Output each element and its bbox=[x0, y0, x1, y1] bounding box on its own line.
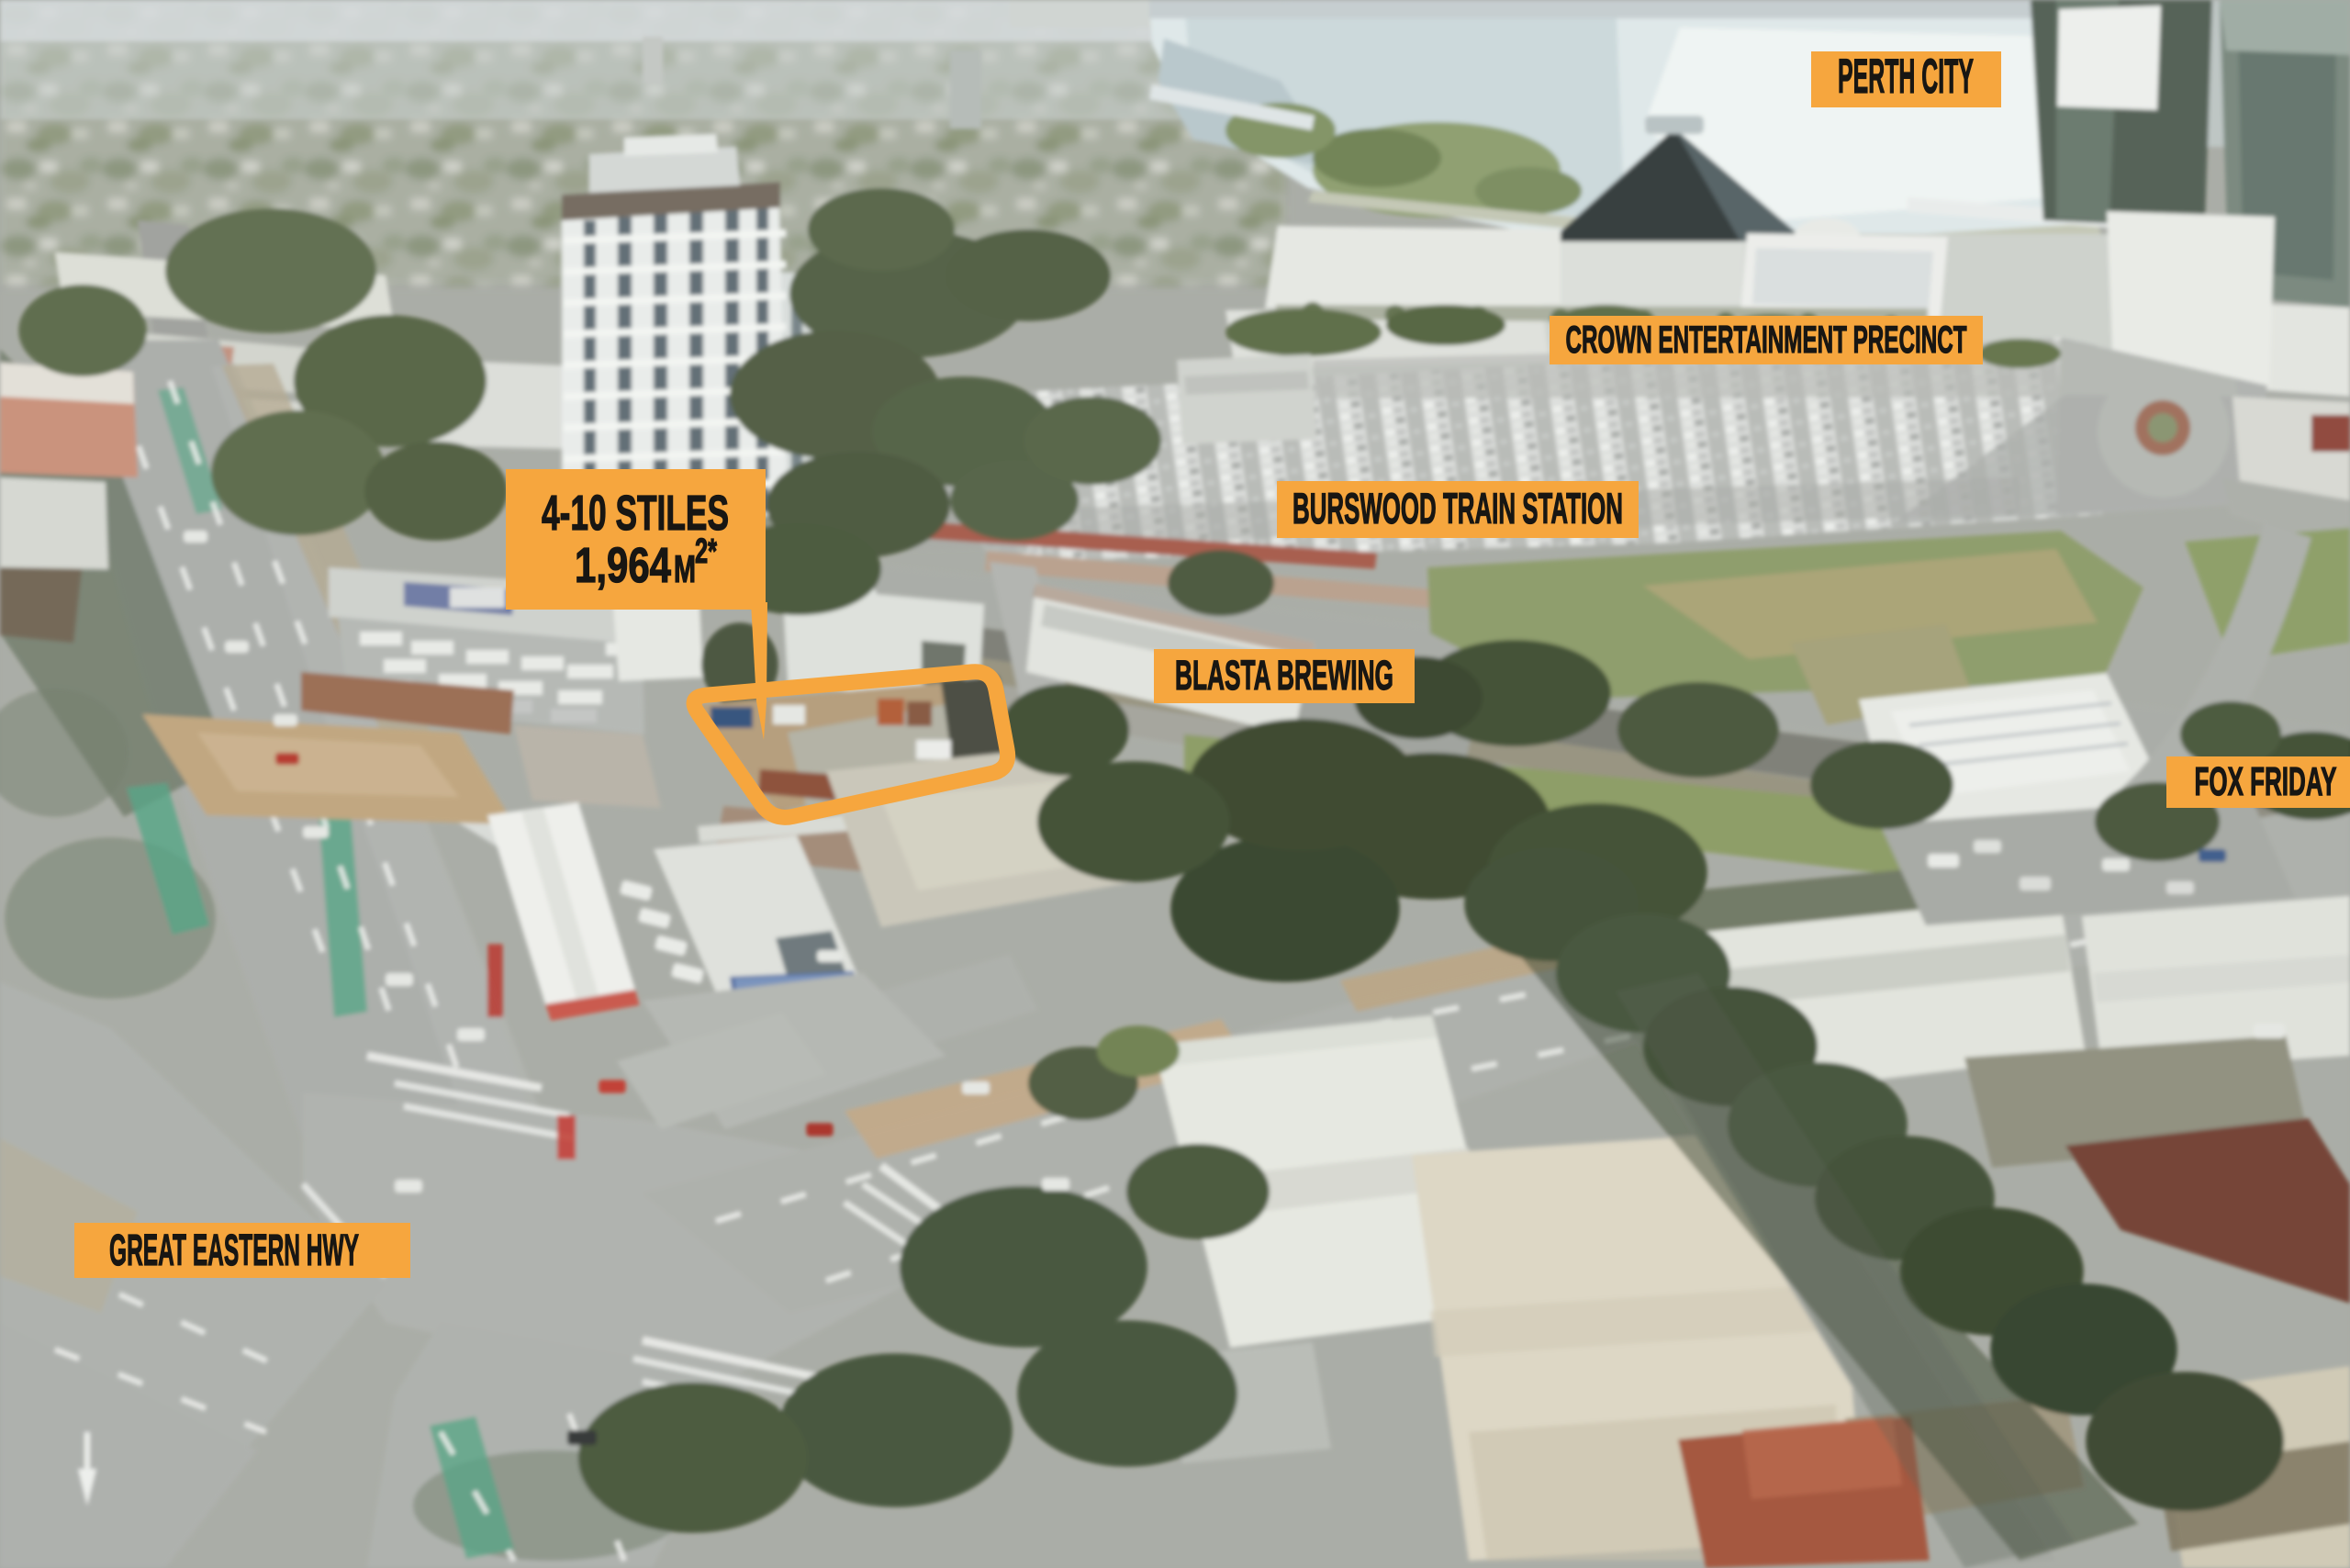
svg-text:BLASTA BREWING: BLASTA BREWING bbox=[1175, 652, 1393, 699]
svg-text:M: M bbox=[674, 547, 696, 590]
svg-text:1,964: 1,964 bbox=[575, 538, 671, 593]
svg-text:BURSWOOD TRAIN STATION: BURSWOOD TRAIN STATION bbox=[1292, 484, 1623, 532]
svg-text:CROWN ENTERTAINMENT PRECINCT: CROWN ENTERTAINMENT PRECINCT bbox=[1566, 318, 1967, 361]
svg-text:FOX FRIDAY: FOX FRIDAY bbox=[2195, 759, 2337, 804]
svg-text:PERTH CITY: PERTH CITY bbox=[1838, 50, 1974, 104]
svg-text:GREAT EASTERN HWY: GREAT EASTERN HWY bbox=[109, 1226, 359, 1275]
svg-text:2*: 2* bbox=[695, 532, 717, 571]
